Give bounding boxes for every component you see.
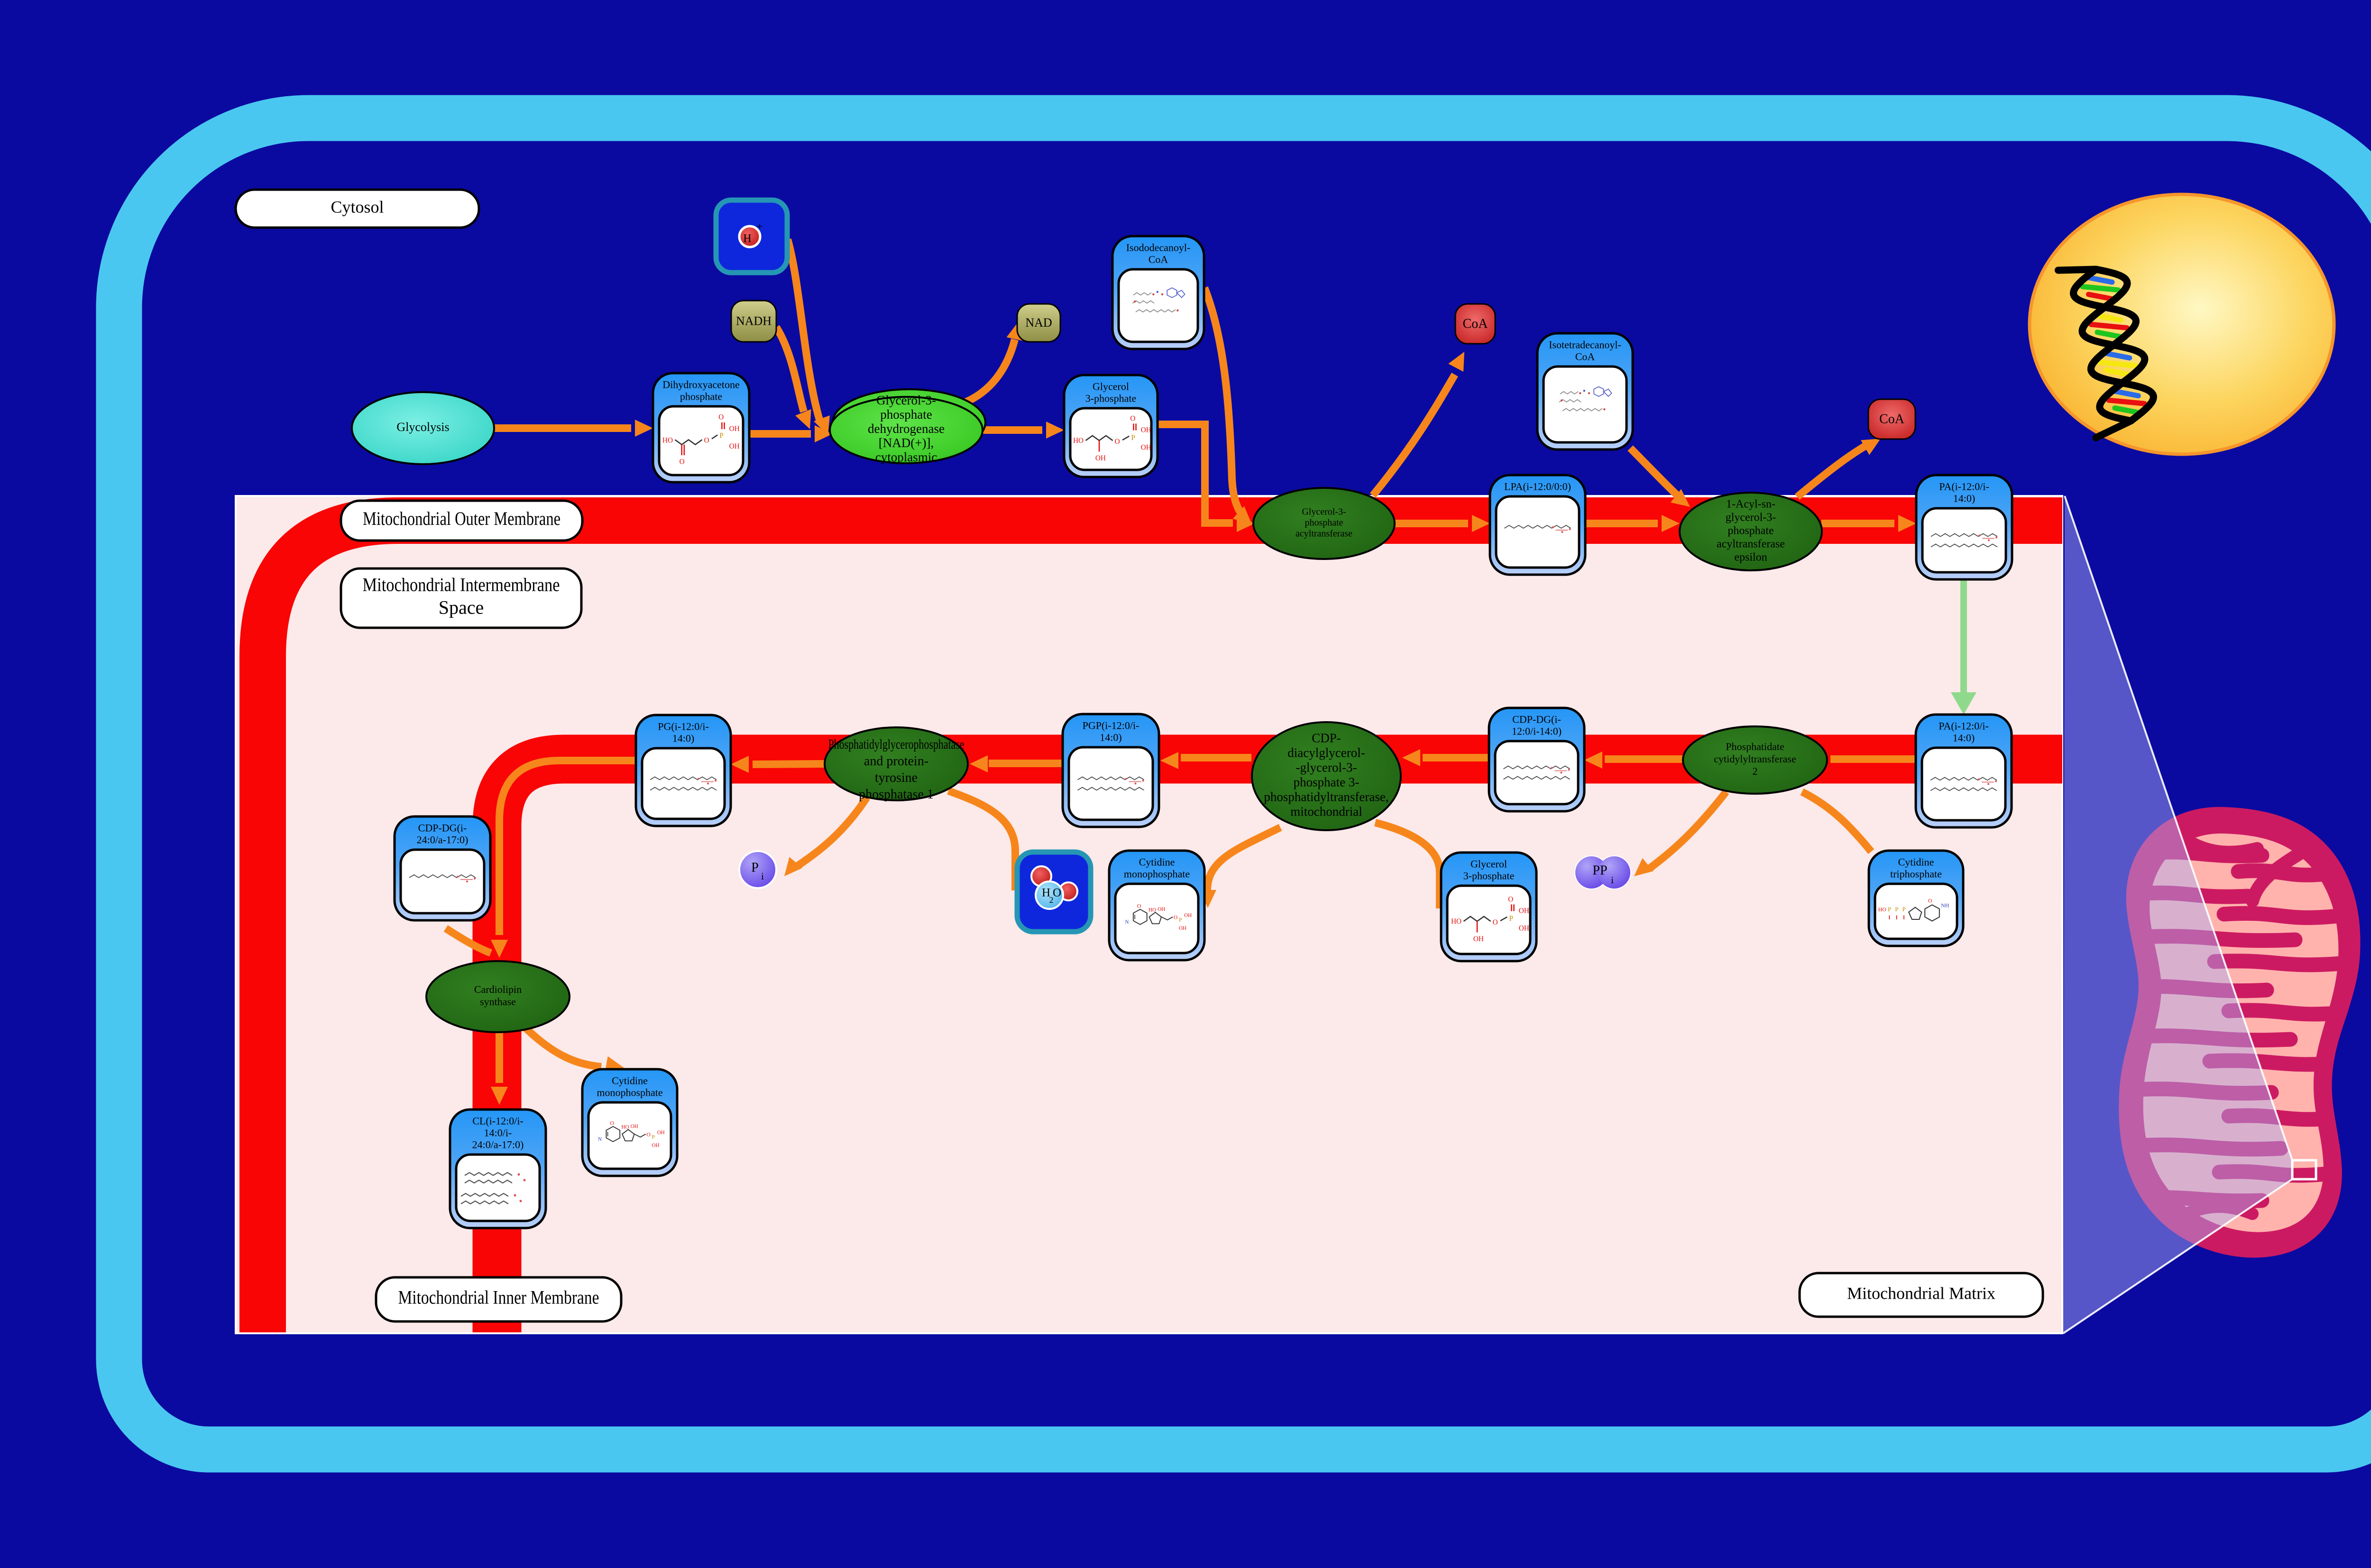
svg-text:LPA(i-12:0/0:0): LPA(i-12:0/0:0)	[1504, 481, 1571, 493]
svg-text:PA(i-12:0/i-: PA(i-12:0/i-	[1939, 720, 1989, 732]
svg-text:Glycerol: Glycerol	[1093, 381, 1129, 393]
svg-text:[NAD(+)],: [NAD(+)],	[879, 436, 934, 450]
svg-text:epsilon: epsilon	[1734, 551, 1767, 564]
svg-text:Cytidine: Cytidine	[612, 1075, 648, 1087]
svg-text:Glycerol-3-: Glycerol-3-	[876, 393, 936, 407]
svg-text:Mitochondrial Inner Membrane: Mitochondrial Inner Membrane	[398, 1287, 599, 1308]
svg-text:OH: OH	[729, 425, 740, 433]
svg-text:P: P	[1902, 906, 1906, 913]
svg-text:PG(i-12:0/i-: PG(i-12:0/i-	[658, 721, 709, 733]
svg-text:3-phosphate: 3-phosphate	[1463, 870, 1515, 882]
svg-text:OH: OH	[1184, 913, 1192, 918]
svg-text:acyltransferase: acyltransferase	[1296, 529, 1352, 539]
svg-text:phosphate: phosphate	[1728, 525, 1774, 537]
svg-text:3-phosphate: 3-phosphate	[1085, 393, 1137, 404]
svg-text:OH: OH	[1141, 443, 1151, 451]
svg-text:Mitochondrial Intermembrane: Mitochondrial Intermembrane	[363, 574, 560, 596]
svg-text:O: O	[680, 458, 685, 466]
svg-text:P: P	[1895, 906, 1898, 913]
svg-text:P: P	[1509, 915, 1513, 923]
svg-text:CoA: CoA	[1463, 316, 1489, 331]
svg-text:OH: OH	[657, 1130, 665, 1136]
svg-text:i: i	[1611, 874, 1614, 886]
svg-text:HO: HO	[1073, 437, 1084, 445]
svg-text:CDP-: CDP-	[1312, 731, 1341, 745]
svg-text:NADH: NADH	[736, 314, 772, 328]
svg-text:CDP-DG(i-: CDP-DG(i-	[1512, 714, 1561, 725]
svg-text:N: N	[598, 1137, 602, 1142]
svg-text:P: P	[751, 860, 759, 875]
svg-text:PGP(i-12:0/i-: PGP(i-12:0/i-	[1083, 720, 1140, 732]
svg-text:O: O	[1053, 887, 1061, 899]
svg-text:CDP-DG(i-: CDP-DG(i-	[418, 822, 467, 834]
svg-text:Phosphatidate: Phosphatidate	[1726, 741, 1784, 752]
svg-text:OH: OH	[652, 1143, 659, 1148]
svg-text:Cytidine: Cytidine	[1139, 856, 1175, 868]
svg-text:O: O	[1130, 414, 1135, 422]
svg-text:PA(i-12:0/i-: PA(i-12:0/i-	[1939, 481, 1989, 493]
svg-text:P: P	[1179, 916, 1182, 923]
svg-text:monophosphate: monophosphate	[597, 1087, 662, 1099]
svg-text:P: P	[719, 431, 724, 440]
svg-text:O: O	[718, 413, 724, 422]
svg-text:HO: HO	[1451, 917, 1461, 926]
svg-text:NAD: NAD	[1025, 316, 1052, 330]
svg-text:synthase: synthase	[480, 996, 516, 1008]
svg-text:O: O	[1508, 895, 1513, 903]
svg-text:i: i	[761, 871, 764, 882]
svg-text:O: O	[1137, 903, 1141, 909]
svg-text:NH: NH	[1941, 902, 1949, 909]
svg-text:phosphatase 1: phosphatase 1	[859, 787, 934, 802]
svg-text:24:0/a-17:0): 24:0/a-17:0)	[472, 1139, 524, 1151]
svg-text:24:0/a-17:0): 24:0/a-17:0)	[417, 834, 469, 846]
svg-text:phosphate 3-: phosphate 3-	[1294, 775, 1360, 789]
svg-text:cytoplasmic: cytoplasmic	[875, 450, 937, 464]
svg-text:O: O	[1115, 438, 1120, 446]
svg-text:P: P	[1888, 906, 1891, 913]
svg-text:Phosphatidylglycerophosphatase: Phosphatidylglycerophosphatase	[828, 737, 965, 752]
svg-text:OH: OH	[1473, 935, 1484, 943]
svg-text:Isotetradecanoyl-: Isotetradecanoyl-	[1549, 339, 1621, 351]
svg-text:OH: OH	[1179, 926, 1186, 931]
svg-text:CoA: CoA	[1575, 351, 1595, 363]
svg-text:O: O	[704, 437, 709, 445]
svg-text:OH: OH	[1095, 454, 1106, 462]
svg-text:14:0/i-: 14:0/i-	[484, 1127, 512, 1139]
svg-text:N: N	[1125, 919, 1129, 925]
svg-text:and protein-: and protein-	[864, 754, 928, 769]
svg-text:cytidylyltransferase: cytidylyltransferase	[1714, 753, 1796, 765]
svg-text:14:0): 14:0)	[1953, 493, 1975, 504]
svg-text:1-Acyl-sn-: 1-Acyl-sn-	[1726, 498, 1775, 511]
svg-text:OH: OH	[1519, 924, 1529, 932]
svg-text:+: +	[756, 221, 763, 233]
svg-text:14:0): 14:0)	[1100, 732, 1121, 743]
svg-text:diacylglycerol-: diacylglycerol-	[1287, 746, 1365, 760]
svg-text:14:0): 14:0)	[672, 733, 694, 744]
svg-text:HO: HO	[1878, 906, 1887, 913]
svg-text:phosphatidyltransferase,: phosphatidyltransferase,	[1264, 790, 1388, 804]
svg-text:O: O	[1174, 914, 1178, 921]
svg-text:phosphate: phosphate	[1305, 518, 1343, 528]
svg-text:tyrosine: tyrosine	[875, 770, 918, 785]
svg-text:Cardiolipin: Cardiolipin	[474, 983, 522, 995]
svg-text:HO: HO	[1149, 908, 1156, 913]
svg-text:CoA: CoA	[1149, 254, 1168, 266]
svg-text:mitochondrial: mitochondrial	[1290, 805, 1362, 819]
svg-text:HO: HO	[621, 1125, 629, 1130]
svg-text:triphosphate: triphosphate	[1890, 868, 1942, 880]
svg-text:acyltransferase: acyltransferase	[1717, 538, 1785, 550]
svg-text:12:0/i-14:0): 12:0/i-14:0)	[1512, 725, 1562, 737]
svg-text:OH: OH	[631, 1124, 638, 1129]
svg-text:PP: PP	[1592, 863, 1607, 878]
svg-text:Dihydroxyacetone: Dihydroxyacetone	[662, 379, 740, 391]
svg-text:O: O	[1928, 897, 1932, 904]
svg-text:CoA: CoA	[1879, 412, 1905, 426]
svg-text:OH: OH	[1141, 426, 1151, 434]
svg-text:dehydrogenase: dehydrogenase	[868, 422, 945, 436]
svg-text:Cytidine: Cytidine	[1898, 856, 1934, 868]
svg-text:glycerol-3-: glycerol-3-	[1726, 512, 1776, 524]
svg-text:Glycerol-3-: Glycerol-3-	[1302, 507, 1346, 517]
svg-text:HO: HO	[662, 437, 673, 445]
svg-text:P: P	[652, 1133, 655, 1140]
svg-text:Space: Space	[439, 597, 484, 618]
svg-text:Cytosol: Cytosol	[331, 197, 384, 216]
svg-text:Glycerol: Glycerol	[1470, 858, 1507, 870]
svg-text:14:0): 14:0)	[1953, 732, 1975, 744]
svg-text:O: O	[610, 1120, 614, 1127]
svg-text:O: O	[646, 1131, 651, 1138]
svg-text:2: 2	[1753, 765, 1758, 777]
svg-text:-glycerol-3-: -glycerol-3-	[1296, 761, 1357, 775]
svg-text:OH: OH	[1519, 907, 1529, 915]
svg-text:P: P	[1131, 434, 1135, 442]
svg-text:Glycolysis: Glycolysis	[396, 420, 449, 434]
svg-text:monophosphate: monophosphate	[1124, 868, 1190, 880]
svg-text:Mitochondrial Outer Membrane: Mitochondrial Outer Membrane	[363, 508, 561, 529]
svg-text:Mitochondrial Matrix: Mitochondrial Matrix	[1847, 1284, 1995, 1302]
svg-text:O: O	[1493, 918, 1498, 926]
svg-text:phosphate: phosphate	[880, 407, 932, 422]
svg-text:phosphate: phosphate	[680, 391, 722, 403]
svg-text:H: H	[743, 233, 751, 245]
svg-text:OH: OH	[1158, 907, 1165, 912]
svg-text:OH: OH	[729, 442, 740, 450]
svg-text:Isododecanoyl-: Isododecanoyl-	[1126, 242, 1191, 254]
svg-text:CL(i-12:0/i-: CL(i-12:0/i-	[472, 1115, 524, 1127]
